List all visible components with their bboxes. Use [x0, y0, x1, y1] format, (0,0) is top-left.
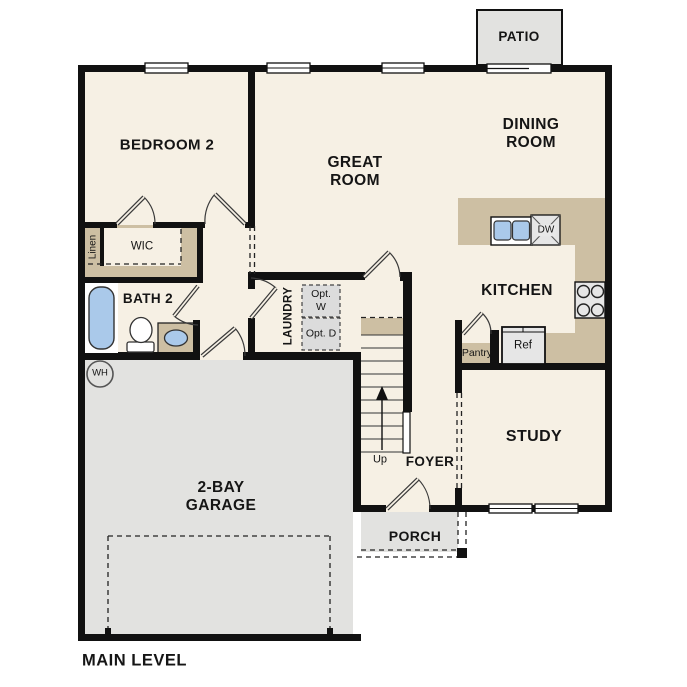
room-label-bath2: BATH 2	[123, 291, 173, 307]
linen-divider-wall	[100, 228, 104, 266]
window	[145, 63, 188, 73]
room-label-patio: PATIO	[498, 29, 539, 45]
room-label-study: STUDY	[506, 428, 562, 446]
window	[382, 63, 424, 73]
kitchen-counter-right-lower	[575, 318, 605, 333]
stairs-up-label: Up	[373, 454, 387, 467]
room-label-bedroom2: BEDROOM 2	[120, 136, 214, 153]
sink-basin-left	[494, 221, 511, 240]
water-heater-label: WH	[92, 369, 108, 380]
toilet-tank	[127, 342, 154, 352]
stove	[575, 282, 605, 318]
sink-basin-right	[513, 221, 530, 240]
opt-washer-label: Opt. W	[305, 288, 337, 314]
room-label-laundry: LAUNDRY	[282, 287, 295, 346]
room-label-porch: PORCH	[389, 528, 442, 544]
floorplan-geometry	[0, 0, 687, 687]
room-label-garage: 2-BAY GARAGE	[171, 479, 271, 515]
patio-sliding-door	[487, 64, 551, 73]
window	[267, 63, 310, 73]
porch-post	[457, 548, 467, 558]
room-label-foyer: FOYER	[406, 454, 455, 470]
room-label-wic: WIC	[131, 240, 153, 253]
toilet-bowl	[130, 318, 152, 343]
bathtub	[89, 287, 114, 349]
refrigerator-label: Ref	[514, 339, 532, 352]
plan-title: MAIN LEVEL	[82, 652, 187, 671]
floor-fills	[78, 10, 612, 634]
floorplan: BEDROOM 2 GREAT ROOM DINING ROOM KITCHEN…	[0, 0, 687, 687]
window	[535, 504, 578, 513]
opt-dryer-label: Opt. D	[305, 327, 337, 340]
pantry-label: Pantry	[462, 347, 492, 359]
room-label-great-room: GREAT ROOM	[308, 154, 403, 190]
room-label-dining-room: DINING ROOM	[484, 116, 579, 152]
stair-landing	[361, 318, 403, 335]
kitchen-counter-right-upper	[575, 245, 605, 282]
linen-label: Linen	[87, 235, 99, 259]
vanity-sink	[165, 330, 188, 346]
dishwasher-label: DW	[537, 224, 556, 236]
window	[489, 504, 532, 513]
kitchen-counter-bottom	[545, 333, 605, 363]
stair-railing	[403, 412, 410, 453]
room-label-kitchen: KITCHEN	[481, 282, 553, 300]
